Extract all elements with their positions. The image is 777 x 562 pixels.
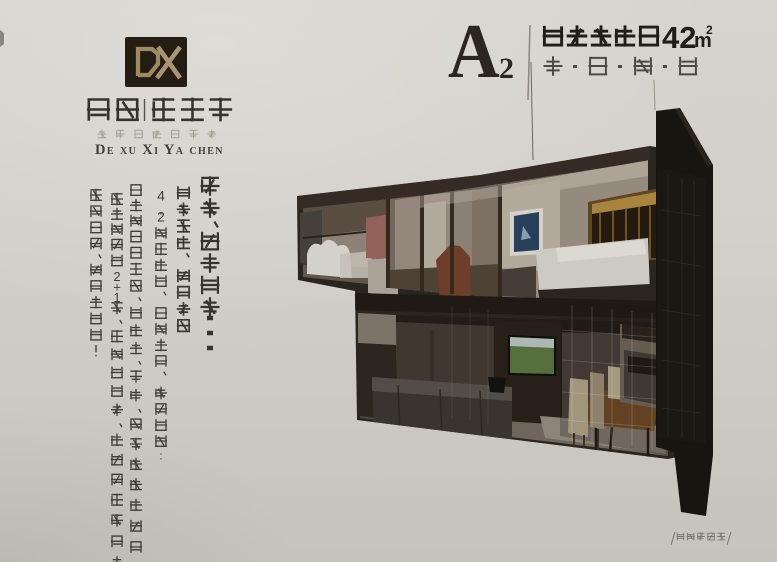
- svg-text:42: 42: [662, 20, 696, 55]
- svg-text:2: 2: [157, 209, 165, 225]
- svg-text:De xu Xi Ya chen: De xu Xi Ya chen: [95, 142, 224, 158]
- svg-text:2: 2: [499, 52, 514, 85]
- svg-text:A: A: [448, 10, 500, 95]
- svg-text:1: 1: [113, 290, 120, 305]
- svg-text:2: 2: [706, 23, 713, 37]
